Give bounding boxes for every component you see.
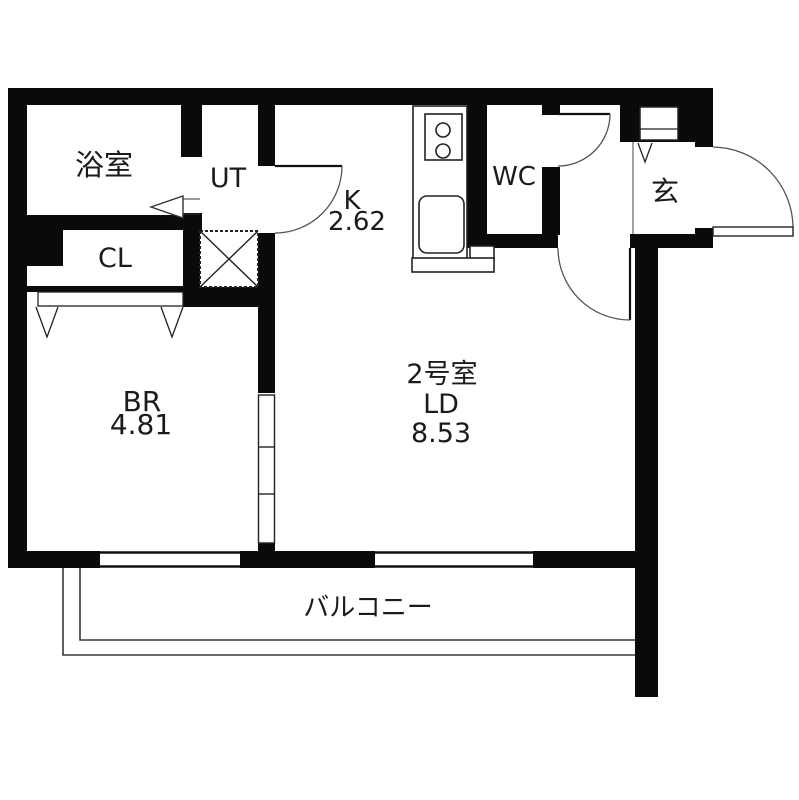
br-ld-sliding-door-icon xyxy=(259,395,275,543)
utility-label: UT xyxy=(210,163,247,194)
wall-bottom-left xyxy=(8,551,100,568)
wall-cl-bottom-bar xyxy=(27,286,183,292)
wall-ut-kitchen-upper xyxy=(258,105,275,166)
wall-right-main xyxy=(635,234,658,697)
burner-icon xyxy=(436,123,450,137)
living-window-icon xyxy=(375,551,533,568)
living-dining-area: 8.53 xyxy=(411,418,471,449)
wall-wc-right-bottom xyxy=(542,167,560,235)
wall-top xyxy=(8,88,713,105)
wall-right-door-stub xyxy=(695,228,713,248)
burner-icon xyxy=(436,144,450,158)
kitchen-area: 2.62 xyxy=(328,207,386,237)
wall-left xyxy=(8,105,27,568)
closet-label: CL xyxy=(98,243,132,274)
wall-right-top xyxy=(695,88,713,147)
entrance-label: 玄 xyxy=(651,175,679,208)
unit-label: 2号室 xyxy=(406,359,477,390)
wall-br-ld-upper xyxy=(258,233,275,393)
wall-wc-right-top xyxy=(542,105,560,115)
wall-kitchen-wc xyxy=(467,105,487,235)
wc-door-opening xyxy=(542,115,560,167)
counter-base xyxy=(412,258,494,272)
wall-bath-ut-lower xyxy=(181,213,202,230)
balcony-label: バルコニー xyxy=(303,593,432,623)
toilet-label: WC xyxy=(492,162,536,192)
living-dining-label: LD xyxy=(423,389,459,420)
bathroom-door-opening xyxy=(183,157,200,213)
wall-cl-step xyxy=(27,230,63,266)
floor-plan-page: 浴室 UT K 2.62 WC 玄 CL BR 4.81 2号室 LD 8.53… xyxy=(0,0,799,800)
bathroom-label: 浴室 xyxy=(75,148,133,182)
wall-bottom-right xyxy=(533,551,658,568)
wall-below-bathroom xyxy=(8,215,202,230)
sink-icon xyxy=(419,196,464,253)
floor-plan-svg: 浴室 UT K 2.62 WC 玄 CL BR 4.81 2号室 LD 8.53… xyxy=(0,0,799,800)
wall-bottom-mid xyxy=(240,551,375,568)
shaft-x-box-icon xyxy=(200,231,258,287)
wall-bath-ut-upper xyxy=(181,105,202,157)
bedroom-window-icon xyxy=(100,551,240,568)
bedroom-area: 4.81 xyxy=(110,408,172,441)
